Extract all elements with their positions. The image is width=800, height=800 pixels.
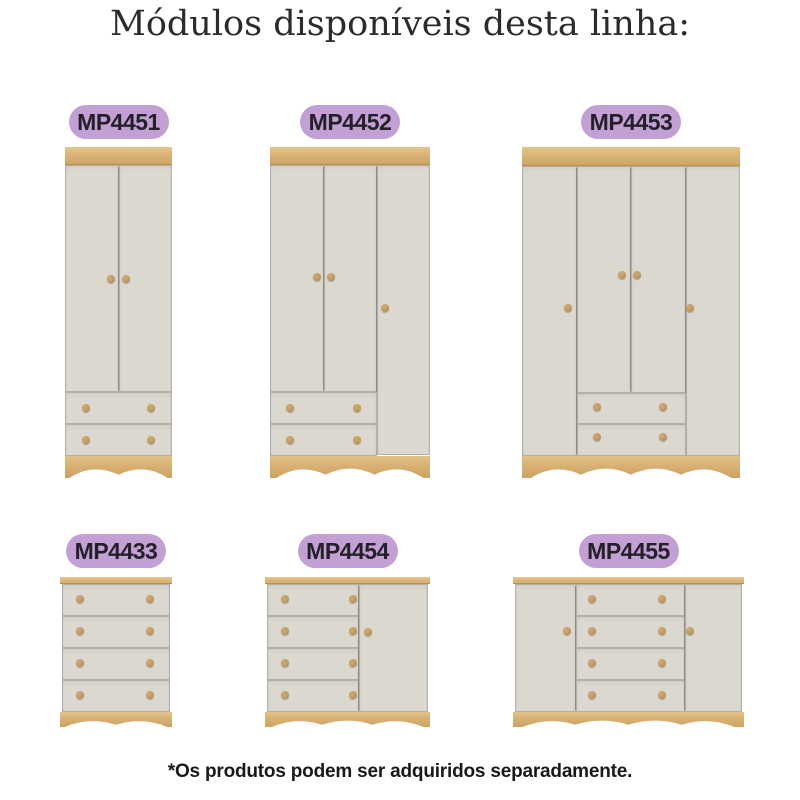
drawer-knob [281,691,289,699]
door-knob [633,271,641,279]
drawer-knob [76,595,84,603]
scalloped-base [265,712,430,727]
door-seam [358,586,359,710]
wardrobe-door [577,166,631,393]
scalloped-base [60,712,172,727]
scalloped-base [65,456,172,478]
door-knob [618,271,626,279]
drawer-knob [349,595,357,603]
wood-top [513,577,744,584]
door-seam [630,168,631,391]
wardrobe-2-door-illustration [65,147,172,478]
wood-top [270,147,430,165]
wardrobe-door [631,166,686,393]
module-mp4455: MP4455 [515,534,742,727]
drawer-knob [286,404,294,412]
dresser-door-illustration [267,577,428,727]
drawer-knob [588,595,596,603]
disclaimer-text: *Os produtos podem ser adquiridos separa… [0,761,800,783]
module-label-badge: MP4454 [298,534,398,568]
cabinet-door [515,584,576,712]
door-knob [563,627,571,635]
drawer-knob [353,436,361,444]
drawer-knob [76,691,84,699]
drawer-knob [146,659,154,667]
door-seam [118,167,119,390]
drawer-knob [349,659,357,667]
drawer-knob [281,595,289,603]
drawer-knob [146,595,154,603]
scalloped-base [513,712,744,727]
drawer-knob [146,691,154,699]
module-label-badge: MP4452 [300,105,400,139]
door-knob [364,628,372,636]
drawer-knob [147,436,155,444]
drawer-knob [281,659,289,667]
page-title: Módulos disponíveis desta linha: [0,4,800,44]
door-seam [684,586,685,710]
module-mp4452: MP4452 [270,105,430,478]
drawer-knob [147,404,155,412]
drawer-knob [659,433,667,441]
product-modules-image: Módulos disponíveis desta linha: MP4451 … [0,0,800,800]
cabinet-door [359,584,428,712]
module-label-badge: MP4433 [66,534,166,568]
door-seam [323,167,324,390]
drawer-knob [82,404,90,412]
drawer-knob [281,627,289,635]
dresser-2-door-illustration [515,577,742,727]
drawer-knob [353,404,361,412]
wardrobe-3-door-illustration [270,147,430,478]
drawer-knob [659,403,667,411]
drawer-knob [658,659,666,667]
module-mp4454: MP4454 [267,534,428,727]
drawer-knob [593,433,601,441]
drawer-knob [286,436,294,444]
module-mp4453: MP4453 [522,105,740,478]
wood-top [522,147,740,166]
door-knob [381,304,389,312]
drawer-knob [76,659,84,667]
door-knob [313,273,321,281]
drawer-knob [146,627,154,635]
module-mp4451: MP4451 [65,105,172,478]
scalloped-base [522,456,740,478]
module-mp4433: MP4433 [62,534,170,727]
wood-top [60,577,172,584]
drawer-knob [658,691,666,699]
drawer-front [577,424,686,456]
drawer-knob [82,436,90,444]
drawer-knob [658,595,666,603]
wardrobe-4-door-illustration [522,147,740,478]
module-label-badge: MP4453 [581,105,681,139]
drawer-knob [349,691,357,699]
wood-top [265,577,430,584]
door-knob [327,273,335,281]
module-label-badge: MP4451 [69,105,169,139]
cabinet-door [685,584,742,712]
wardrobe-door [686,166,740,456]
door-knob [686,304,694,312]
drawer-knob [593,403,601,411]
module-label-badge: MP4455 [579,534,679,568]
drawer-knob [349,627,357,635]
drawer-knob [588,659,596,667]
scalloped-base [270,456,430,478]
door-knob [107,275,115,283]
wood-top [65,147,172,165]
door-knob [564,304,572,312]
drawer-knob [76,627,84,635]
drawer-knob [588,691,596,699]
door-knob [686,627,694,635]
chest-4-drawer-illustration [62,577,170,727]
drawer-knob [588,627,596,635]
door-seam [575,586,576,710]
drawer-knob [658,627,666,635]
door-knob [122,275,130,283]
